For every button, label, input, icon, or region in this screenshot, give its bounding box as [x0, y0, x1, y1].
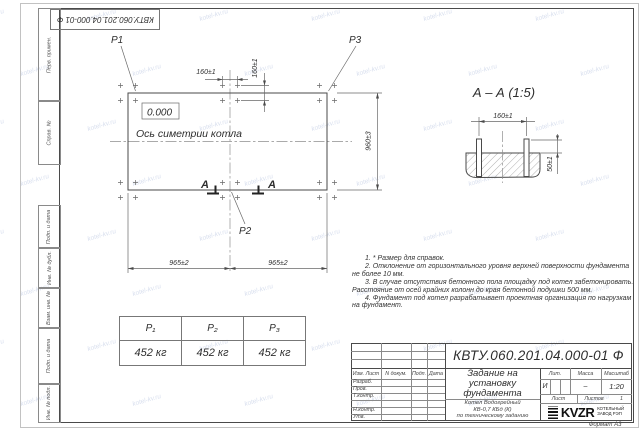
tb-title-line: Задание на: [467, 369, 518, 379]
frame-label-inv-podl: Инв. № подл.: [38, 383, 61, 423]
watermark-text: kotel-kv.ru: [0, 228, 5, 243]
tb-line: [381, 343, 382, 421]
tb-title-line: установку: [469, 379, 516, 389]
tb-listov-value: 1: [611, 394, 632, 403]
tb-col-podp: Подп.: [411, 368, 427, 379]
load-table-header-row: P₁ P₂ P₃: [120, 317, 306, 341]
frame-label-text: Инв. № дубл.: [47, 251, 53, 285]
load-value-p1: 452 кг: [120, 341, 182, 366]
technical-notes: 1. * Размер для справок. 2. Отклонение о…: [352, 255, 634, 310]
tb-document-title: Задание на установку фундамента: [445, 368, 540, 399]
frame-label-text: Перв. примен.: [47, 37, 53, 74]
logo-wordmark: KVZR: [561, 405, 594, 420]
frame-label-podp-data-2: Подп. и дата: [38, 327, 61, 385]
load-table: P₁ P₂ P₃ 452 кг 452 кг 452 кг: [119, 316, 306, 366]
tb-line: [427, 343, 428, 421]
doc-number-stamp: КВТУ.060.201.04.000-01 Ф: [50, 9, 160, 30]
frame-label-vzam-inv: Взам. инв. №: [38, 287, 61, 329]
tb-row-razrab: Разраб.: [353, 379, 380, 386]
tb-row-prov: Пров.: [353, 386, 380, 393]
tb-col-data: Дата: [427, 368, 445, 379]
watermark-text: kotel-kv.ru: [0, 338, 5, 353]
frame-label-text: Взам. инв. №: [47, 291, 53, 325]
tb-col-dokum: N докум.: [381, 368, 411, 379]
watermark-text: kotel-kv.ru: [0, 118, 5, 133]
load-table-header-p3: P₃: [244, 317, 306, 341]
note-4: 4. Фундамент под котел разрабатывает про…: [352, 295, 634, 311]
tb-row-nkontr: Н.контр.: [353, 407, 380, 414]
frame-label-text: Подп. и дата: [47, 210, 53, 244]
tb-product-name: Котел Водогрейный КВ-0,7 КБд (К) по техн…: [445, 399, 540, 421]
tb-row-utv: Утв.: [353, 414, 380, 421]
logo-subtitle: КОТЕЛЬНЫЙ ЗАВОД РЭП: [597, 407, 624, 417]
format-note: Формат А3: [576, 422, 634, 428]
tb-lit-value: И: [540, 379, 550, 394]
tb-list-label: Лист: [540, 394, 577, 403]
load-value-p3: 452 кг: [244, 341, 306, 366]
frame-label-sprav-n: Справ. №: [38, 100, 61, 165]
frame-label-text: Справ. №: [47, 120, 53, 145]
tb-title-line: фундамента: [463, 389, 521, 399]
tb-lit-label: Лит.: [540, 368, 570, 379]
tb-border: [351, 343, 352, 421]
tb-line: [560, 379, 561, 394]
note-2: 2. Отклонение от горизонтального уровня …: [352, 263, 634, 279]
load-table-header-p2: P₂: [182, 317, 244, 341]
title-block: Изм. Лист N докум. Подп. Дата Разраб. Пр…: [351, 343, 632, 421]
manufacturer-logo: KVZR КОТЕЛЬНЫЙ ЗАВОД РЭП: [540, 403, 632, 421]
tb-line: [411, 343, 412, 421]
tb-product-line: по техническому заданию: [457, 413, 529, 419]
frame-label-inv-dubl: Инв. № дубл.: [38, 247, 61, 289]
logo-subtitle-line: ЗАВОД РЭП: [597, 412, 624, 417]
coil-spring-icon: [548, 406, 558, 419]
tb-masshtab-label: Масштаб: [601, 368, 632, 379]
tb-masshtab-value: 1:20: [601, 379, 632, 394]
frame-label-podp-data-1: Подп. и дата: [38, 205, 61, 249]
tb-line: [550, 379, 551, 394]
tb-line: [351, 359, 445, 360]
note-3: 3. В случае отсутствия бетонного пола пл…: [352, 279, 634, 295]
tb-row-tkontr: Т.контр.: [353, 393, 380, 400]
tb-line: [351, 351, 445, 352]
drawing-sheet: kotel-kv.rukotel-kv.rukotel-kv.rukotel-k…: [0, 0, 644, 430]
load-value-p2: 452 кг: [182, 341, 244, 366]
tb-row-empty: [353, 400, 380, 407]
tb-doc-number: КВТУ.060.201.04.000-01 Ф: [445, 343, 632, 368]
note-1: 1. * Размер для справок.: [352, 255, 634, 263]
watermark-text: kotel-kv.ru: [0, 8, 5, 23]
tb-col-izm-list: Изм. Лист: [351, 368, 381, 379]
frame-label-text: Инв. № подл.: [47, 386, 53, 420]
load-table-header-p1: P₁: [120, 317, 182, 341]
load-table-value-row: 452 кг 452 кг 452 кг: [120, 341, 306, 366]
tb-listov-label: Листов: [577, 394, 611, 403]
doc-number-stamp-text: КВТУ.060.201.04.000-01 Ф: [57, 15, 154, 24]
tb-massa-label: Масса: [570, 368, 601, 379]
tb-massa-value: –: [570, 379, 601, 394]
frame-label-text: Подп. и дата: [47, 339, 53, 373]
